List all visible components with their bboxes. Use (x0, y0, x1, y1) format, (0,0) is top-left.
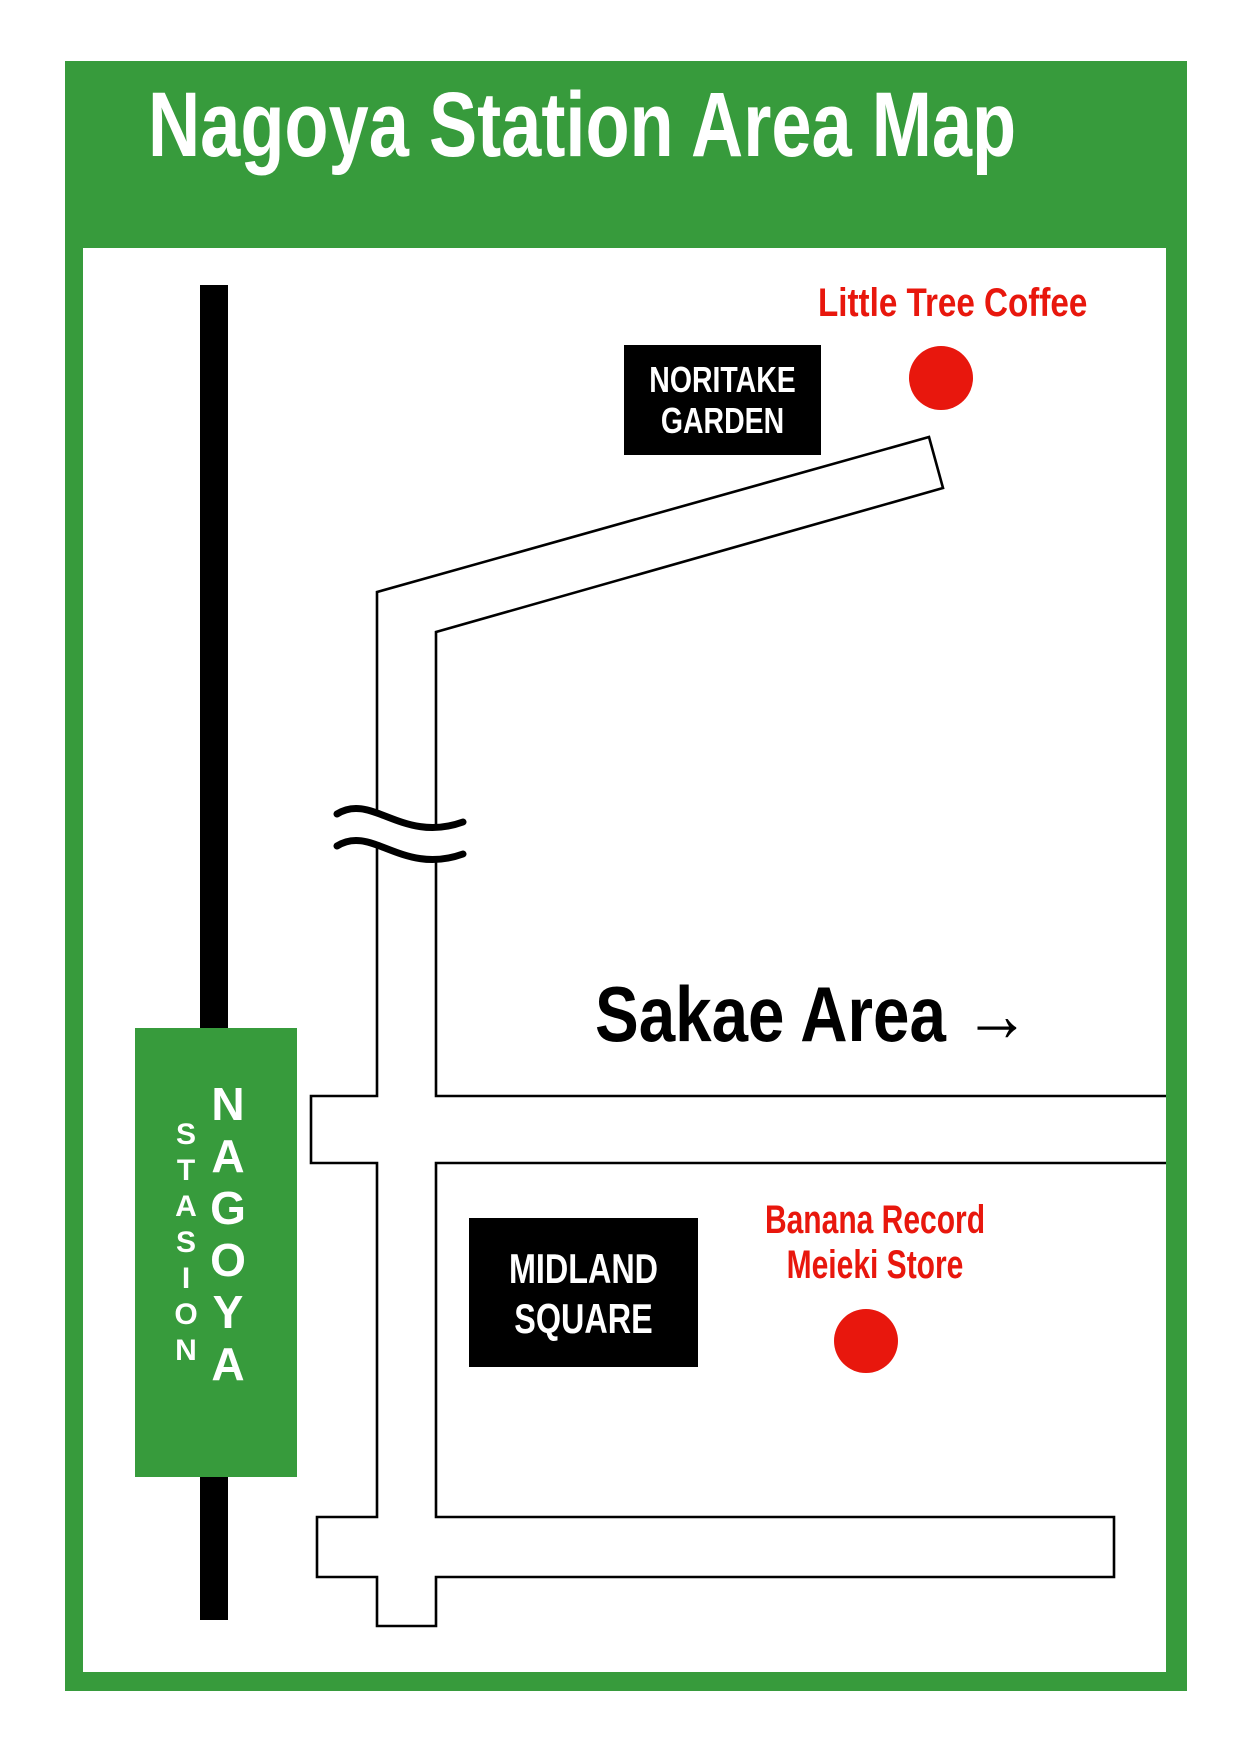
station-letter: S (161, 1117, 211, 1153)
banana-record-marker (834, 1309, 898, 1373)
station-letter: N (161, 1333, 211, 1369)
station-subtitle-column: STASION (161, 1117, 211, 1369)
noritake-garden-label-line1: NORITAKE (645, 359, 801, 400)
sakae-area-label: Sakae Area (595, 970, 946, 1058)
map-canvas (83, 248, 1166, 1672)
noritake-garden-box: NORITAKE GARDEN (624, 345, 821, 455)
banana-record-label-line2: Meieki Store (755, 1243, 995, 1288)
station-letter: I (161, 1261, 211, 1297)
noritake-garden-label-line2: GARDEN (645, 400, 801, 441)
sakae-area-direction: Sakae Area → (595, 975, 1030, 1053)
little-tree-coffee-marker (909, 346, 973, 410)
map-frame: Nagoya Station Area Map NAGOYA STASION N… (65, 61, 1187, 1691)
banana-record-label-line1: Banana Record (755, 1198, 995, 1243)
station-letter: O (161, 1297, 211, 1333)
station-letter: T (161, 1153, 211, 1189)
right-arrow-icon: → (964, 970, 1030, 1058)
little-tree-coffee-label: Little Tree Coffee (818, 283, 1087, 323)
map-title: Nagoya Station Area Map (148, 79, 1016, 171)
page: { "title": "Nagoya Station Area Map", "c… (0, 0, 1241, 1755)
midland-square-label-line1: MIDLAND (495, 1244, 671, 1294)
banana-record-label: Banana Record Meieki Store (755, 1198, 995, 1288)
midland-square-box: MIDLAND SQUARE (469, 1218, 698, 1367)
midland-square-label-line2: SQUARE (495, 1294, 671, 1344)
station-letter: S (161, 1225, 211, 1261)
map-area: NAGOYA STASION NORITAKE GARDEN MIDLAND S… (83, 248, 1166, 1672)
station-letter: A (161, 1189, 211, 1225)
